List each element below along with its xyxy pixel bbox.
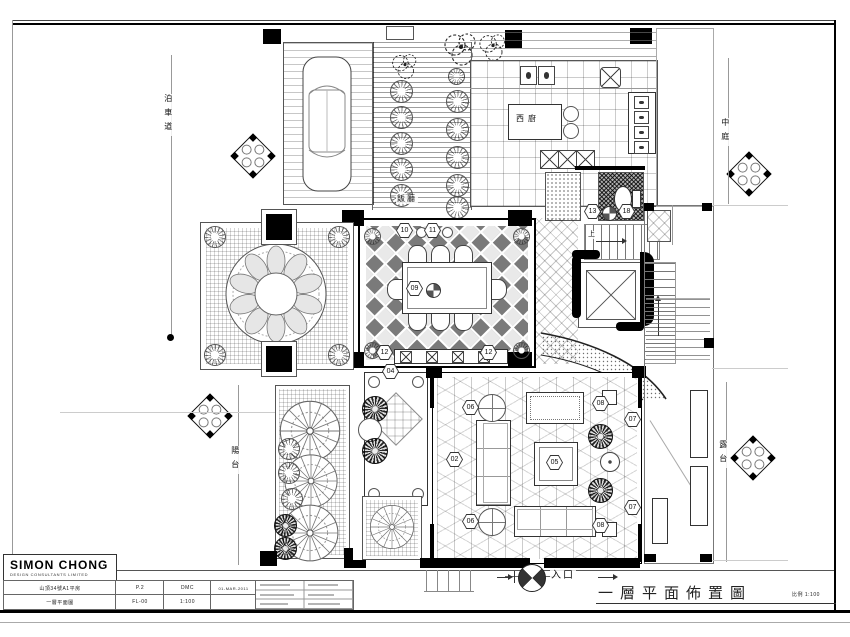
drawing-name: 一層平面圖: [46, 599, 74, 606]
keynote-marker: 18: [618, 204, 635, 219]
plant-icon: [390, 158, 413, 181]
wall-corner: [508, 210, 532, 226]
burner-icon: [634, 141, 649, 154]
plant-icon: [390, 132, 413, 155]
plant-icon: [446, 146, 469, 169]
floor-lamp-icon: [478, 508, 506, 536]
sheet-number: P.2: [136, 585, 144, 591]
courtyard-area: [656, 28, 714, 207]
scale-value: 1:100: [180, 599, 195, 605]
column-icon: [262, 210, 296, 244]
fan-parterre: [368, 502, 416, 552]
keynote-marker: 11: [424, 223, 441, 238]
extension-line: [712, 205, 788, 206]
plant-icon: [328, 226, 350, 248]
keynote-marker: 07: [624, 412, 641, 427]
entry-step: [437, 570, 438, 591]
room-label-terrace: 露台: [718, 440, 727, 468]
entry-step-edge: [424, 591, 474, 592]
dimension-dot: [167, 334, 174, 341]
wall-segment: [572, 256, 581, 318]
plant-icon: [446, 174, 469, 197]
dimension-line: [726, 382, 727, 562]
plant-icon: [204, 344, 226, 366]
frame-right-line: [834, 20, 836, 612]
room-label-courtyard: 中庭: [720, 118, 729, 146]
elevator-car: [586, 270, 636, 320]
sideboard-panel: [452, 351, 464, 363]
keynote-marker: 10: [396, 223, 413, 238]
issue-date: 01-MAR-2011: [218, 586, 248, 591]
side-steps: [646, 298, 710, 360]
frame-top-line-bold: [12, 23, 836, 25]
extension-line: [712, 368, 788, 369]
level-marker: [187, 393, 232, 438]
plant-icon: [274, 537, 297, 560]
level-marker: [730, 435, 775, 480]
drawing-number: FL-00: [132, 599, 148, 605]
company-subtitle: DESIGN CONSULTANTS LIMITED: [10, 572, 88, 577]
side-table-round: [600, 452, 620, 472]
stove-icon: [538, 66, 555, 85]
stair-direction-line: [596, 241, 622, 242]
wall-corner: [644, 554, 656, 562]
corner-rosette: [513, 342, 530, 359]
stove-icon: [520, 66, 537, 85]
entry-step: [459, 570, 460, 591]
wall-segment: [344, 560, 366, 568]
room-label-balcony: 陽台: [230, 446, 239, 474]
wall-corner: [700, 554, 712, 562]
plant-icon: [281, 488, 303, 510]
console-scroll: [368, 376, 380, 388]
wall-column: [260, 551, 277, 566]
planter-box: [386, 26, 414, 40]
wall-corner: [704, 338, 714, 348]
floor-medallion: [224, 242, 328, 346]
drawn-by: DMC: [181, 585, 194, 591]
titleblock-drawingno-cell: FL-00: [115, 594, 165, 610]
plant-icon: [588, 478, 613, 503]
keynote-marker: 12: [480, 345, 497, 360]
wall-segment: [638, 372, 642, 408]
keynote-marker: 02: [446, 452, 463, 467]
stair-up-label: 上: [587, 231, 596, 239]
datum-point-icon: [602, 206, 617, 221]
burner-icon: [634, 111, 649, 124]
fridge-icon: [600, 67, 621, 88]
plant-icon: [446, 196, 469, 219]
keynote-marker: 04: [382, 364, 399, 379]
plant-icon: [390, 106, 413, 129]
wall-corner: [644, 203, 654, 211]
keynote-marker: 08: [592, 518, 609, 533]
sofa-icon: [514, 506, 596, 537]
keynote-marker: 06: [462, 514, 479, 529]
exit-arrow-icon: [613, 574, 618, 580]
keynote-marker: 13: [584, 204, 601, 219]
keynote-marker: 08: [592, 396, 609, 411]
frame-bottom-line-thin: [0, 622, 850, 623]
floor-lamp-icon: [478, 394, 506, 422]
titleblock-scale-cell: 1:100: [163, 594, 212, 610]
wardrobe: [690, 466, 708, 526]
sink-icon: [563, 123, 579, 139]
wall-segment: [572, 250, 600, 259]
partition-line: [672, 205, 673, 245]
wall-corner: [426, 366, 442, 378]
sofa-icon: [476, 420, 511, 506]
downlight-icon: [442, 227, 453, 238]
corner-rosette: [513, 228, 530, 245]
plant-icon: [328, 344, 350, 366]
plant-icon: [588, 424, 613, 449]
sink-icon: [563, 106, 579, 122]
sheet-scale-note: 比例 1:100: [792, 591, 820, 598]
plant-icon: [446, 118, 469, 141]
sideboard-panel: [400, 351, 412, 363]
plant-icon: [278, 462, 300, 484]
keynote-marker: 09: [406, 281, 423, 296]
entrance-label: 入口: [550, 570, 576, 581]
wall-segment: [430, 524, 434, 562]
bath-mosaic-floor: [545, 172, 581, 221]
wall-segment: [430, 372, 434, 408]
titleblock-drawingname-cell: 一層平面圖: [3, 594, 117, 610]
car-icon: [297, 54, 357, 194]
wall-segment: [575, 166, 645, 170]
wall-segment: [420, 558, 530, 568]
frame-title-separator: [12, 570, 834, 571]
sheet-title-underline: [596, 603, 836, 604]
floor-plan-sheet: { "drawing_title": { "text": "一層平面佈置圖", …: [0, 0, 850, 637]
datum-point-icon: [426, 283, 441, 298]
cabinet-icon: [540, 150, 559, 169]
titleblock-empty-cell: [210, 594, 257, 610]
sheet-title: 一層平面佈置圖: [598, 582, 752, 603]
entrance-tick: [514, 571, 515, 583]
room-label-dining: 飯廳: [396, 195, 418, 204]
extension-line: [712, 560, 788, 561]
plant-icon: [274, 514, 297, 537]
plant-icon: [362, 438, 388, 464]
kitchen-counter-line: [470, 88, 656, 89]
entrance-arrow-icon: [508, 574, 513, 580]
console-table: [526, 392, 584, 424]
stair-arrow-icon: [622, 238, 627, 244]
console-scroll: [412, 376, 424, 388]
wall-corner: [702, 203, 712, 211]
extension-line: [60, 412, 275, 413]
frame-left-line: [12, 20, 13, 612]
column-icon: [262, 342, 296, 376]
plant-icon: [446, 90, 469, 113]
corner-rosette: [364, 228, 381, 245]
wardrobe: [690, 390, 708, 458]
entry-step: [426, 570, 427, 591]
sideboard-panel: [426, 351, 438, 363]
plant-icon: [278, 438, 300, 460]
wall-segment: [544, 558, 640, 568]
keynote-marker: 06: [462, 400, 479, 415]
keynote-marker: 12: [376, 345, 393, 360]
keynote-marker: 05: [546, 455, 563, 470]
level-marker: [230, 133, 275, 178]
keynote-marker: 07: [624, 500, 641, 515]
frame-top-line: [12, 20, 836, 21]
plant-icon: [390, 80, 413, 103]
company-name: SIMON CHONG: [10, 558, 108, 572]
wardrobe: [652, 498, 668, 544]
side-room-floor: [647, 210, 671, 242]
room-label-driveway: 泊車道: [163, 94, 172, 136]
entrance-compass-icon: [518, 564, 546, 592]
exit-arrow-line: [598, 577, 614, 578]
wall-column: [263, 29, 281, 44]
entry-step: [448, 570, 449, 591]
burner-icon: [634, 96, 649, 109]
titleblock-logo-box: SIMON CHONG DESIGN CONSULTANTS LIMITED: [3, 554, 117, 582]
plant-icon: [204, 226, 226, 248]
burner-icon: [634, 126, 649, 139]
entry-step: [470, 570, 471, 591]
revision-grid: [255, 580, 354, 610]
wall-segment: [638, 524, 642, 562]
room-label-kitchen: 西廚: [515, 115, 541, 124]
frame-bottom-line-bold: [0, 610, 850, 613]
level-marker: [726, 151, 771, 196]
project-name: 山頂34號A1平房: [39, 585, 80, 592]
